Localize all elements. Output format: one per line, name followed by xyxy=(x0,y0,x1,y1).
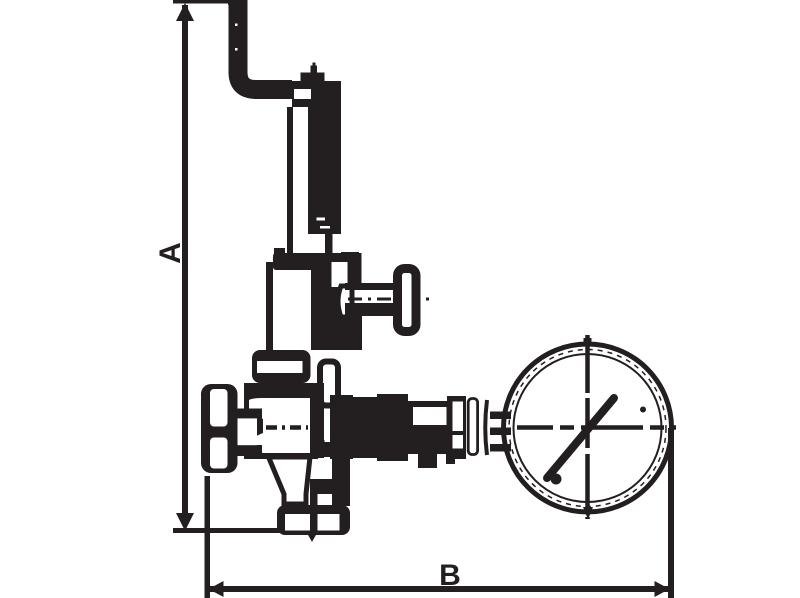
svg-text:A: A xyxy=(154,242,187,264)
svg-text:B: B xyxy=(439,559,461,592)
